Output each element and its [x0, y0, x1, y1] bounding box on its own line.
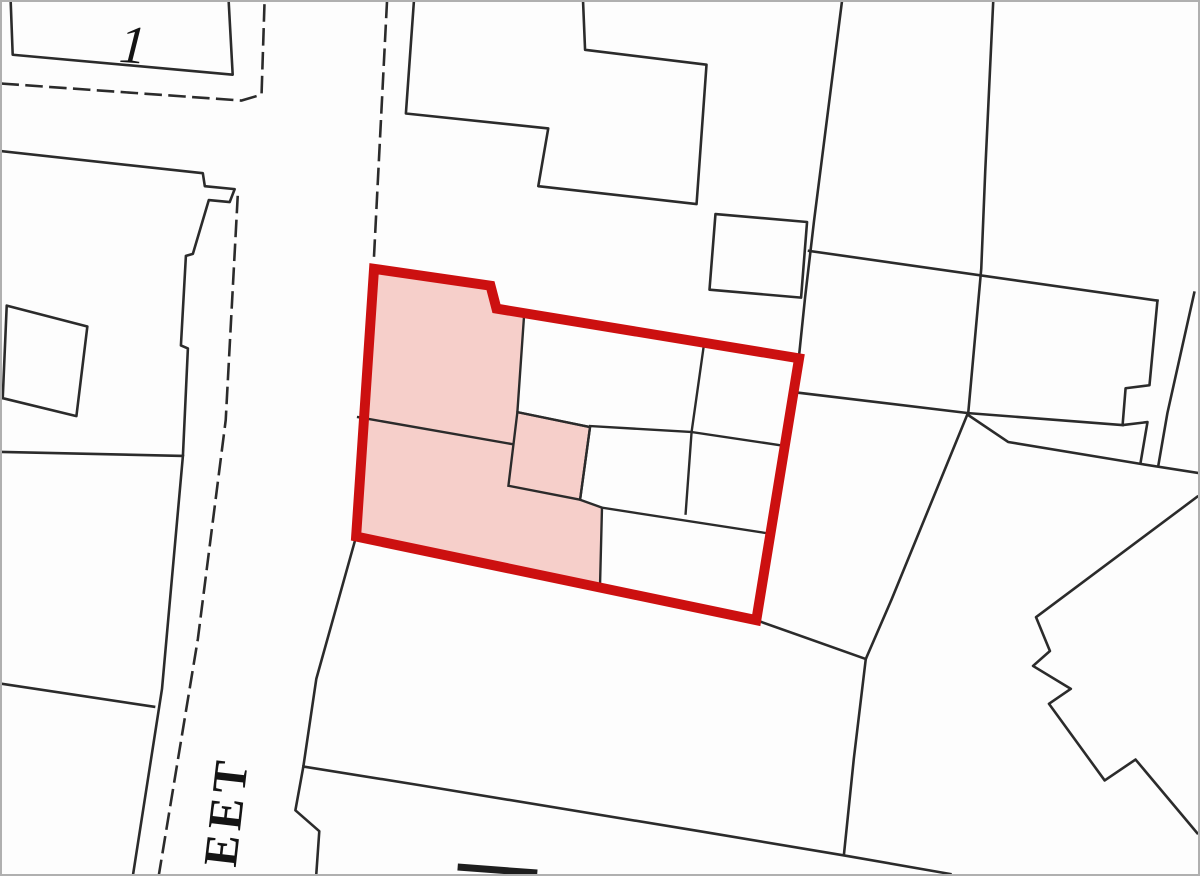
- top-centre-buildings-outline: [406, 2, 707, 204]
- street-left-edge: [133, 456, 183, 874]
- bottom-long-boundary: [303, 766, 950, 874]
- street-name-label: EET: [194, 753, 259, 869]
- east-garden-line-upper: [794, 392, 1122, 425]
- left-parcel-divider: [3, 684, 154, 707]
- application-site: [356, 269, 799, 620]
- house-number-label: 1: [117, 14, 148, 76]
- site-corner-link-line: [756, 620, 865, 659]
- north-boundary-line: [799, 2, 842, 355]
- far-right-parallel-line: [1158, 293, 1194, 465]
- bottom-clipped-building: [458, 867, 538, 873]
- long-east-boundary: [844, 2, 993, 855]
- site-inner-line-vertical: [686, 432, 692, 514]
- map-canvas: 1 EET: [2, 2, 1198, 874]
- map-labels: 1 EET: [117, 14, 259, 869]
- left-building-outline: [3, 151, 235, 456]
- site-inner-line-right: [692, 432, 786, 446]
- site-location-plan: 1 EET: [0, 0, 1200, 876]
- street-right-edge: [295, 537, 356, 874]
- street-dashed-casing-upper-right: [374, 2, 387, 256]
- road-casing-dashed-lines: [3, 2, 387, 874]
- left-small-building-outline: [3, 306, 88, 416]
- top-right-square-building: [709, 214, 807, 298]
- site-inner-line-upper: [692, 340, 705, 432]
- site-inner-line-top: [590, 426, 692, 432]
- bottom-right-building-outline: [1033, 497, 1197, 833]
- right-stepped-boundary: [1123, 301, 1158, 463]
- east-parcel-top-line: [809, 251, 1157, 301]
